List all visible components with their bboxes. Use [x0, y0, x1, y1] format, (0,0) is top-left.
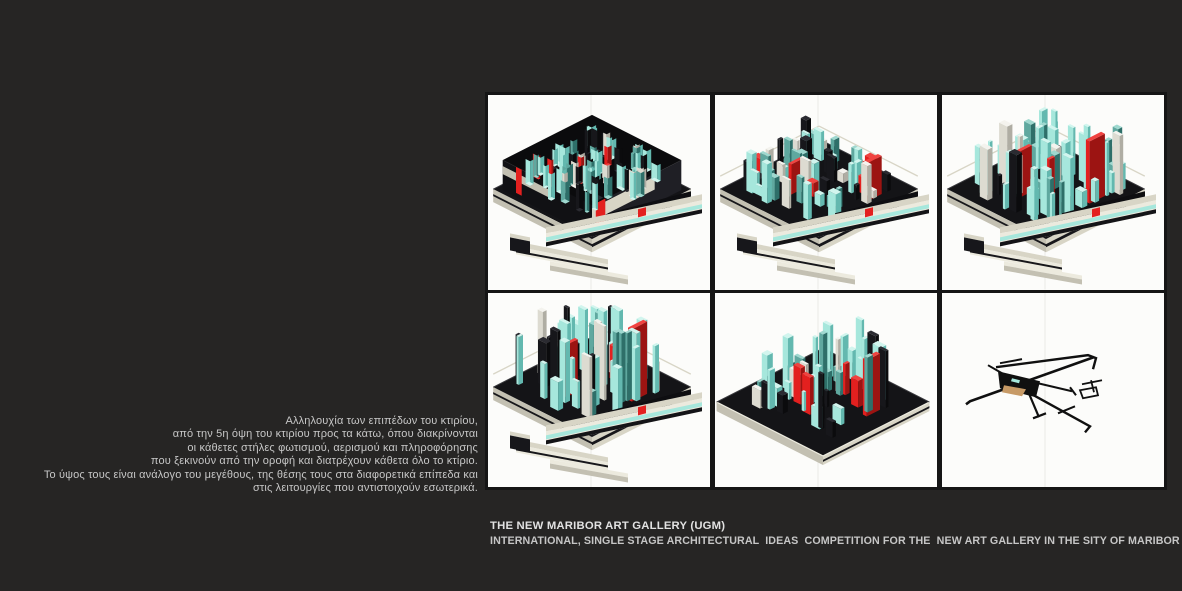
- presentation-board: Αλληλουχία των επιπέδων του κτιρίου, από…: [0, 0, 1182, 591]
- model-panel-plan-skeleton: [942, 293, 1164, 488]
- axonometric-model-4: [488, 293, 710, 488]
- model-panel-columns-tall: [488, 293, 710, 488]
- caption-line: Αλληλουχία των επιπέδων του κτιρίου,: [38, 415, 478, 428]
- caption-line: από την 5η όψη του κτιρίου προς τα κάτω,…: [38, 428, 478, 441]
- axonometric-model-2: [715, 95, 937, 290]
- caption-line: οι κάθετες στήλες φωτισμού, αερισμού και…: [38, 442, 478, 455]
- caption-greek: Αλληλουχία των επιπέδων του κτιρίου, από…: [38, 415, 478, 495]
- axonometric-model-1: [488, 95, 710, 290]
- axonometric-model-5: [715, 293, 937, 488]
- axonometric-model-3: [942, 95, 1164, 290]
- model-panel-columns-mid: [942, 95, 1164, 290]
- plan-skeleton-drawing: [942, 293, 1164, 488]
- caption-line: Το ύψος τους είναι ανάλογο του μεγέθους,…: [38, 469, 478, 482]
- project-title: THE NEW MARIBOR ART GALLERY (UGM): [490, 520, 1182, 532]
- project-subtitle: INTERNATIONAL, SINGLE STAGE ARCHITECTURA…: [490, 535, 1182, 547]
- model-panel-columns-slab: [715, 293, 937, 488]
- model-gallery: [485, 92, 1167, 490]
- caption-line: που ξεκινούν από την οροφή και διατρέχου…: [38, 455, 478, 468]
- model-panel-columns-low: [715, 95, 937, 290]
- model-panel-roof-level: [488, 95, 710, 290]
- title-block: THE NEW MARIBOR ART GALLERY (UGM) INTERN…: [490, 520, 1182, 547]
- caption-line: στις λειτουργίες που αντιστοιχούν εσωτερ…: [38, 482, 478, 495]
